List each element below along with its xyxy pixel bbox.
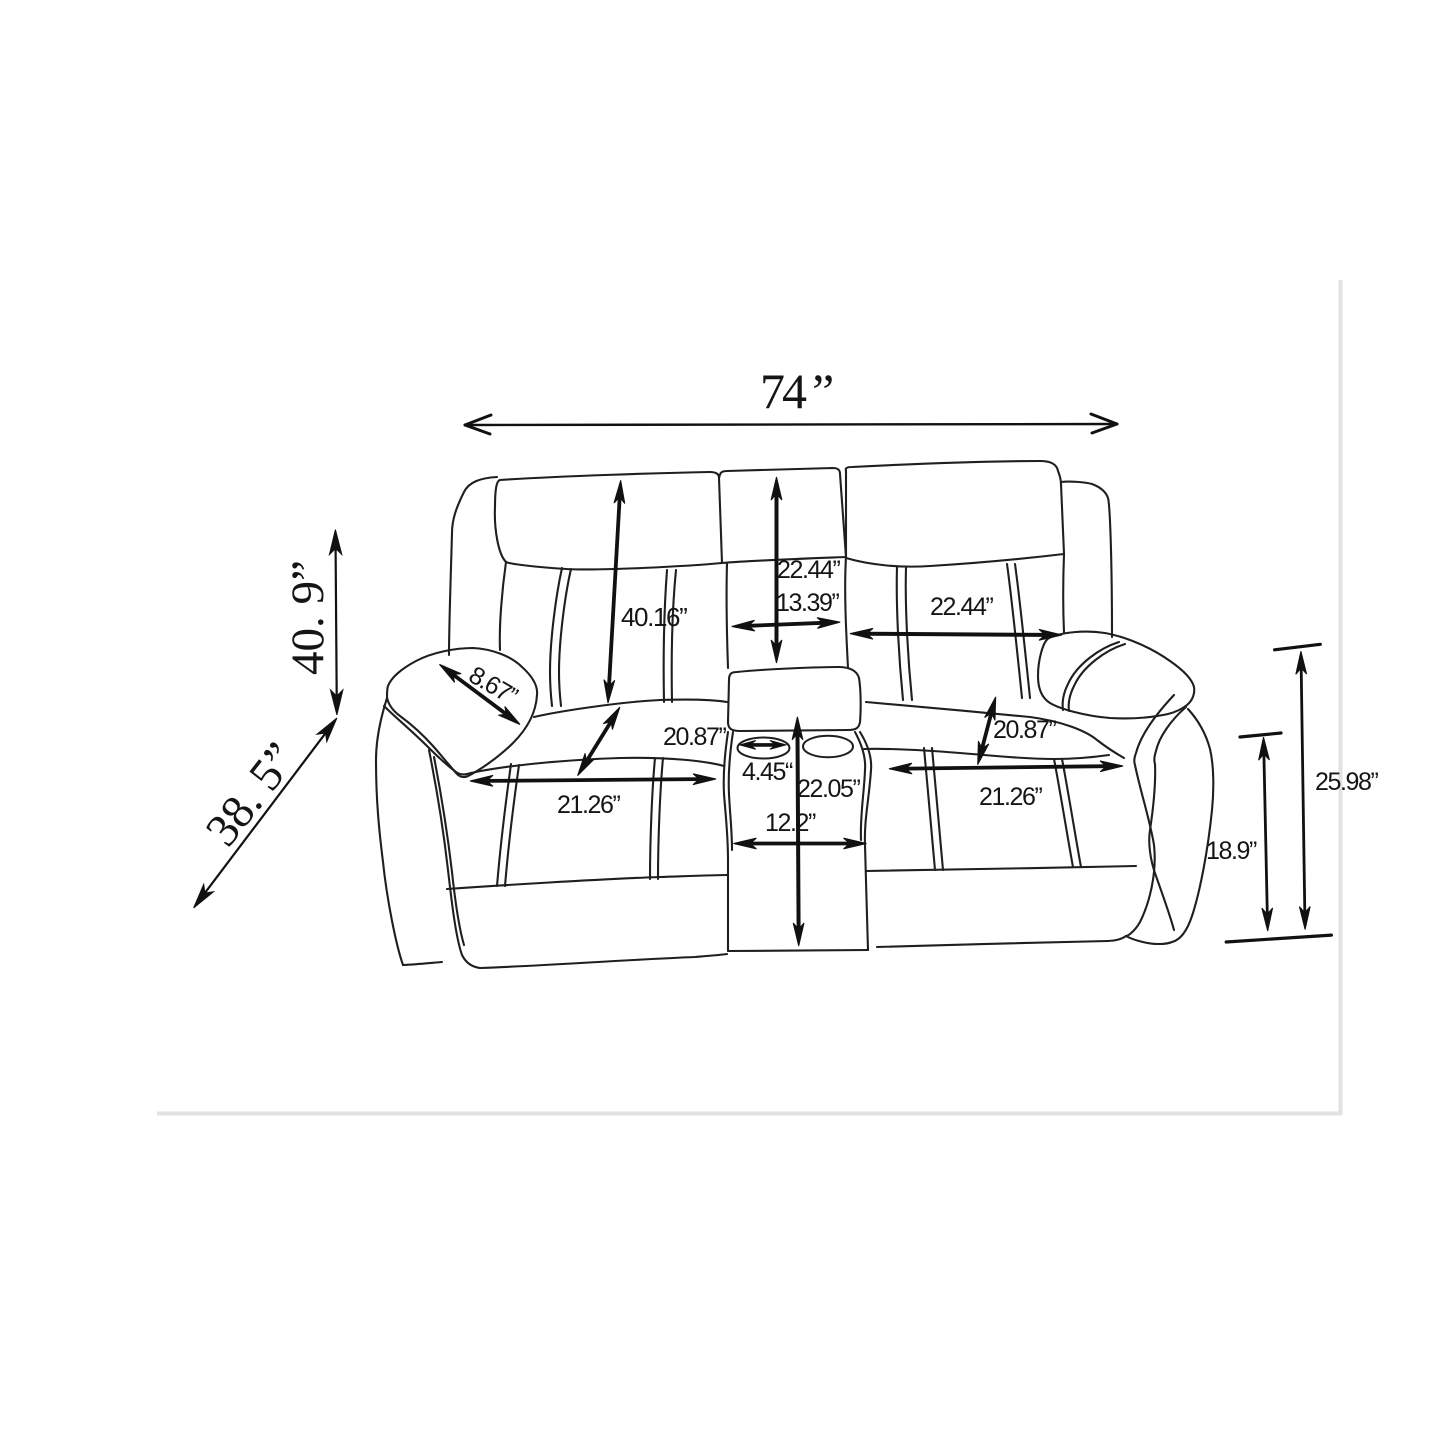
svg-text:20.87”: 20.87” [663, 723, 727, 751]
svg-text:22.44”: 22.44” [777, 556, 841, 584]
svg-text:4.45“: 4.45“ [742, 758, 793, 786]
svg-text:22.44”: 22.44” [930, 593, 994, 621]
svg-text:21.26”: 21.26” [979, 783, 1043, 811]
svg-text:12.2”: 12.2” [765, 809, 816, 837]
svg-text:20.87”: 20.87” [993, 716, 1057, 744]
svg-text:40. 9”: 40. 9” [282, 560, 334, 675]
svg-text:18.9”: 18.9” [1206, 837, 1257, 865]
svg-text:13.39”: 13.39” [776, 589, 840, 617]
svg-text:22.05”: 22.05” [797, 775, 861, 803]
svg-text:21.26”: 21.26” [557, 791, 621, 819]
svg-text:74”: 74” [760, 363, 832, 419]
svg-text:25.98”: 25.98” [1315, 768, 1379, 796]
svg-text:40.16”: 40.16” [621, 602, 687, 632]
